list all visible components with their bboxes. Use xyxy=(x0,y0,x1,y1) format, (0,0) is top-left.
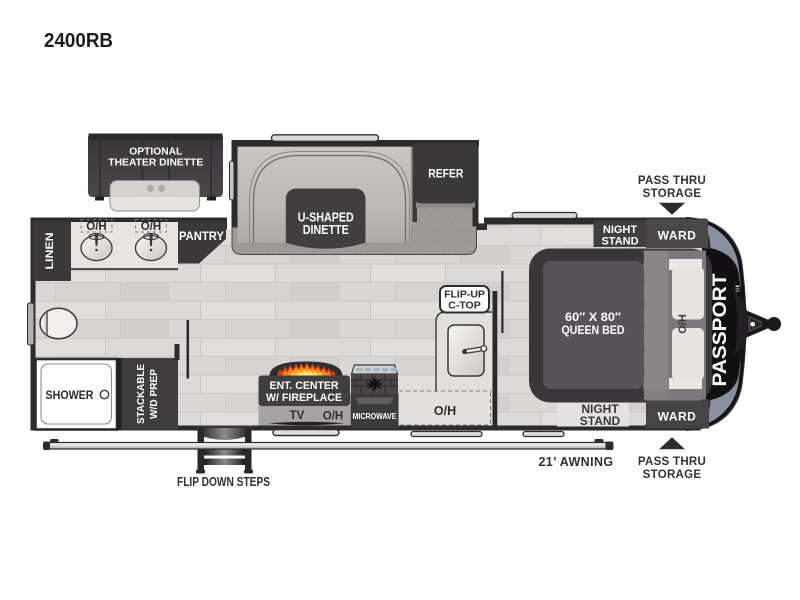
svg-text:PASS THRU: PASS THRU xyxy=(638,456,706,468)
svg-text:DINETTE: DINETTE xyxy=(303,223,349,237)
svg-text:60″ X 80″: 60″ X 80″ xyxy=(565,310,621,324)
svg-text:STAND: STAND xyxy=(580,414,621,428)
svg-text:SHOWER: SHOWER xyxy=(46,388,94,402)
svg-text:O/H: O/H xyxy=(677,314,689,334)
svg-text:W/ FIREPLACE: W/ FIREPLACE xyxy=(266,392,342,404)
svg-text:ENT. CENTER: ENT. CENTER xyxy=(270,380,339,392)
svg-text:O/H: O/H xyxy=(323,411,343,423)
svg-text:TV: TV xyxy=(290,410,305,422)
svg-text:PANTRY: PANTRY xyxy=(179,231,224,243)
svg-text:PASS THRU: PASS THRU xyxy=(638,175,706,187)
svg-text:2400RB: 2400RB xyxy=(44,30,113,52)
svg-text:O/H: O/H xyxy=(434,404,456,418)
svg-text:O/H: O/H xyxy=(86,221,106,233)
svg-text:STAND: STAND xyxy=(601,236,638,248)
svg-text:21’ AWNING: 21’ AWNING xyxy=(538,455,613,469)
svg-text:STORAGE: STORAGE xyxy=(643,469,702,481)
svg-text:W/D PREP: W/D PREP xyxy=(148,369,160,419)
svg-text:STORAGE: STORAGE xyxy=(643,188,702,200)
svg-text:NIGHT: NIGHT xyxy=(603,224,638,236)
svg-text:LINEN: LINEN xyxy=(44,232,56,269)
svg-text:QUEEN BED: QUEEN BED xyxy=(562,323,625,337)
svg-text:WARD: WARD xyxy=(658,229,697,243)
svg-text:C-TOP: C-TOP xyxy=(448,300,480,312)
svg-text:PASSPORT: PASSPORT xyxy=(709,273,731,386)
svg-text:FLIP DOWN STEPS: FLIP DOWN STEPS xyxy=(177,475,270,489)
svg-text:WARD: WARD xyxy=(658,410,697,424)
svg-text:REFER: REFER xyxy=(428,169,464,181)
svg-text:O/H: O/H xyxy=(141,221,161,233)
svg-text:THEATER DINETTE: THEATER DINETTE xyxy=(108,157,203,169)
svg-text:MICROWAVE: MICROWAVE xyxy=(353,411,397,421)
svg-text:STACKABLE: STACKABLE xyxy=(135,364,147,424)
